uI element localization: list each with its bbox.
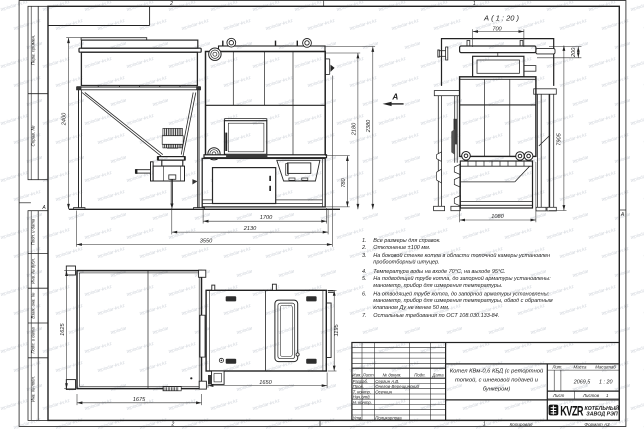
svg-text:Н. контр.: Н. контр. bbox=[353, 400, 372, 405]
svg-text:Подп. и дата: Подп. и дата bbox=[31, 327, 36, 354]
svg-text:А: А bbox=[41, 205, 46, 211]
svg-text:Лит.: Лит. bbox=[551, 365, 562, 370]
svg-text:2069,5: 2069,5 bbox=[573, 379, 591, 385]
svg-text:2.: 2. bbox=[361, 245, 367, 251]
svg-text:4.: 4. bbox=[362, 269, 367, 275]
svg-text:Копировал: Копировал bbox=[510, 422, 533, 427]
svg-text:1080: 1080 bbox=[491, 214, 504, 220]
svg-text:Утв.: Утв. bbox=[353, 415, 363, 420]
svg-text:Подп. и дата: Подп. и дата bbox=[31, 218, 36, 245]
svg-text:Перв. примен.: Перв. примен. bbox=[31, 35, 36, 66]
svg-text:пробоотборный штуцер.: пробоотборный штуцер. bbox=[373, 259, 439, 266]
svg-text:Нач.отд.: Нач.отд. bbox=[353, 395, 371, 400]
svg-text:200: 200 bbox=[571, 47, 577, 58]
svg-text:1675: 1675 bbox=[133, 397, 146, 403]
svg-text:Масса: Масса bbox=[574, 365, 588, 370]
svg-text:2380: 2380 bbox=[366, 119, 372, 133]
svg-text:2: 2 bbox=[169, 1, 173, 7]
svg-text:Инв. № подл.: Инв. № подл. bbox=[31, 376, 36, 402]
svg-text:6.: 6. bbox=[362, 291, 367, 297]
svg-text:1650: 1650 bbox=[259, 380, 272, 386]
svg-text:3550: 3550 bbox=[200, 239, 213, 245]
svg-text:2400: 2400 bbox=[62, 112, 68, 126]
svg-text:На подводящей трубе котла, до: На подводящей трубе котла, до запорной а… bbox=[373, 275, 551, 282]
svg-text:1195: 1195 bbox=[334, 323, 340, 336]
svg-text:7905: 7905 bbox=[557, 132, 563, 145]
svg-text:Поликарпова: Поликарпова bbox=[375, 415, 402, 420]
svg-text:700: 700 bbox=[492, 26, 502, 32]
svg-text:клапаном Ду не менее 50 мм.: клапаном Ду не менее 50 мм. bbox=[373, 305, 449, 311]
svg-text:Масштаб: Масштаб bbox=[595, 365, 616, 370]
svg-text:Остальные требования по ОСТ 10: Остальные требования по ОСТ 108.030.133-… bbox=[373, 313, 499, 319]
svg-text:А: А bbox=[391, 93, 398, 102]
svg-text:Все размеры для справок.: Все размеры для справок. bbox=[373, 238, 440, 244]
svg-text:Взам. инв. №: Взам. инв. № bbox=[31, 292, 36, 318]
svg-text:Осечкин: Осечкин bbox=[375, 389, 392, 394]
svg-text:KVZR: KVZR bbox=[560, 402, 583, 418]
svg-text:А: А bbox=[620, 212, 625, 218]
svg-text:1: 1 bbox=[473, 1, 476, 7]
svg-text:2: 2 bbox=[171, 422, 175, 428]
svg-text:манометр, прибор для измерения: манометр, прибор для измерения температу… bbox=[373, 298, 553, 304]
svg-text:ЗАВОД РЭП: ЗАВОД РЭП bbox=[586, 411, 618, 417]
svg-text:1700: 1700 bbox=[260, 215, 273, 221]
svg-text:Изм.: Изм. bbox=[352, 373, 361, 378]
svg-text:На отводящей трубе котла, до з: На отводящей трубе котла, до запорной ар… bbox=[373, 290, 549, 297]
svg-text:1625: 1625 bbox=[60, 322, 66, 335]
svg-text:Лист: Лист bbox=[362, 373, 374, 378]
svg-text:Отклонение ±100 мм.: Отклонение ±100 мм. bbox=[373, 245, 430, 251]
svg-text:Инв. № дубл.: Инв. № дубл. bbox=[31, 258, 36, 284]
svg-text:5.: 5. bbox=[362, 276, 367, 282]
svg-text:Справ. №: Справ. № bbox=[31, 126, 36, 147]
svg-text:3.: 3. bbox=[362, 253, 367, 259]
svg-text:Формат А3: Формат А3 bbox=[584, 422, 610, 427]
svg-text:Листов: Листов bbox=[582, 393, 600, 398]
svg-text:Онегов-Верещинский: Онегов-Верещинский bbox=[375, 384, 419, 389]
svg-text:2130: 2130 bbox=[243, 226, 257, 232]
svg-text:Дата: Дата bbox=[431, 373, 444, 378]
svg-text:На боковой стенке котла в обла: На боковой стенке котла в области топочн… bbox=[373, 252, 550, 259]
svg-text:Котел КВм-0,6 КБД (с ретортной: Котел КВм-0,6 КБД (с ретортной bbox=[450, 368, 544, 375]
svg-text:А ( 1 : 20 ): А ( 1 : 20 ) bbox=[483, 14, 520, 23]
svg-text:манометр, прибор для измерения: манометр, прибор для измерения температу… bbox=[373, 283, 502, 289]
svg-text:1: 1 bbox=[483, 422, 486, 428]
svg-text:бункером): бункером) bbox=[483, 387, 511, 393]
svg-text:Подп.: Подп. bbox=[414, 373, 425, 378]
svg-text:№ докум.: № докум. bbox=[383, 373, 402, 378]
svg-text:780: 780 bbox=[341, 177, 347, 187]
svg-text:Пров.: Пров. bbox=[353, 384, 364, 389]
svg-text:Лист: Лист bbox=[552, 393, 565, 398]
svg-text:топкой, с шнековой подачей и: топкой, с шнековой подачей и bbox=[455, 377, 539, 384]
svg-text:1.: 1. bbox=[362, 238, 367, 244]
svg-text:1 : 20: 1 : 20 bbox=[599, 379, 613, 385]
svg-text:Температура воды на входе 70°С: Температура воды на входе 70°С, на выход… bbox=[373, 269, 505, 275]
svg-text:2180: 2180 bbox=[351, 122, 357, 136]
svg-text:7.: 7. bbox=[362, 313, 367, 319]
